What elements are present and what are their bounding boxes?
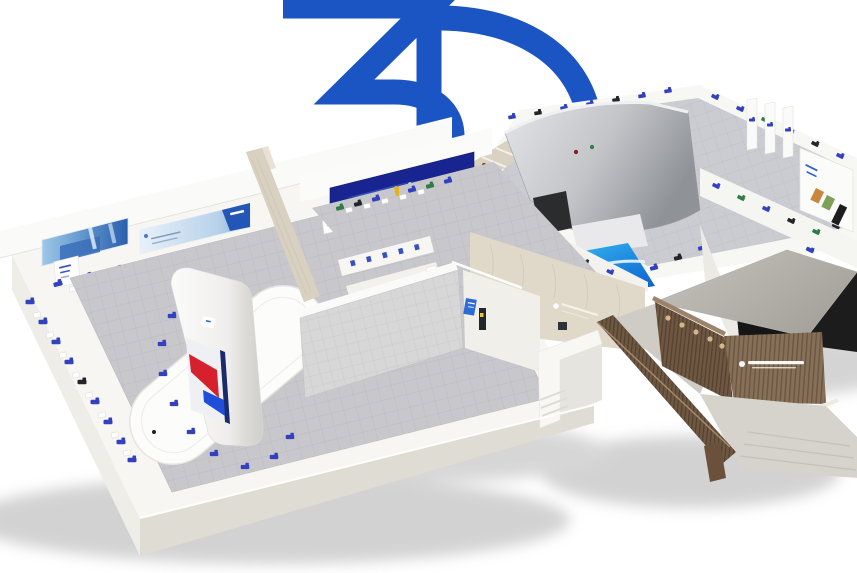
dark-plaque bbox=[558, 322, 567, 330]
exhibition-3d-scene[interactable]: 3D bbox=[0, 0, 857, 573]
floor-marker bbox=[152, 430, 156, 434]
exhibition-3d-preview: 3D bbox=[0, 0, 857, 573]
logo-letter-d-bowl bbox=[429, 18, 588, 112]
